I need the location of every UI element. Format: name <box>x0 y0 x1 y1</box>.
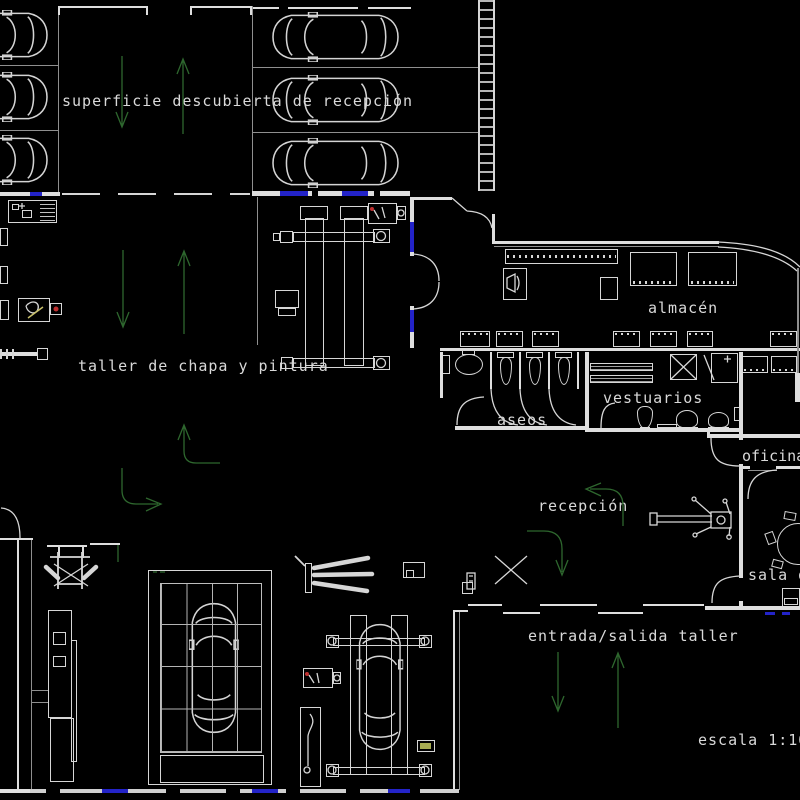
bench <box>590 363 653 371</box>
door-arc <box>711 438 740 466</box>
door-marker <box>252 789 278 793</box>
label-recepcion: recepción <box>538 497 628 515</box>
chair <box>764 531 777 545</box>
label-sala: sala d <box>748 566 800 584</box>
tool-cart <box>303 668 333 688</box>
wall-segment <box>58 6 148 8</box>
label-vestuarios: vestuarios <box>603 389 703 407</box>
bench-thread <box>0 349 14 359</box>
workbench-hatch <box>40 202 55 221</box>
boundary-gap <box>374 191 380 196</box>
shower <box>670 354 697 380</box>
wall-segment <box>707 428 710 438</box>
wall-segment <box>47 545 87 547</box>
wall-segment <box>468 604 502 606</box>
boundary-gap <box>312 191 318 196</box>
wall-cabinet <box>0 228 8 246</box>
label-superficie: superficie descubierta de recepción <box>62 92 413 110</box>
wall-inner-line <box>494 246 719 247</box>
workbench-item <box>22 210 32 218</box>
battery-cell <box>420 743 431 749</box>
sink <box>455 354 483 375</box>
stool-ticks <box>772 333 795 335</box>
wall-segment <box>540 604 597 606</box>
shelf-ticks <box>633 281 674 284</box>
equipment-box <box>503 268 527 300</box>
stall-partition <box>490 352 492 389</box>
hose-cabinet <box>300 707 321 787</box>
wall-segment <box>585 352 589 430</box>
tool-cabinet <box>368 203 397 224</box>
workbench-item <box>12 204 19 210</box>
stall-partition <box>548 352 550 389</box>
booth-floor-grid <box>160 583 262 753</box>
grinder-tool <box>50 303 62 315</box>
wall-segment <box>705 606 800 610</box>
boundary-dashed <box>62 193 250 195</box>
label-oficina: oficina <box>742 447 800 465</box>
parking-divider <box>58 6 59 192</box>
engine-stand-cross <box>54 564 88 586</box>
workbench-narrow <box>71 640 77 762</box>
rack-arms <box>314 558 372 591</box>
wall-cabinet <box>0 266 8 284</box>
side-table-shelf <box>278 308 296 316</box>
washbasin <box>708 412 729 428</box>
stool-ticks <box>615 333 638 335</box>
washbasin <box>676 410 698 428</box>
stall-partition <box>519 352 521 389</box>
door-marker <box>342 191 368 196</box>
wall-segment <box>739 464 743 578</box>
wall-segment <box>453 610 468 612</box>
lift-crossbar <box>293 232 375 242</box>
wall-segment <box>440 352 443 398</box>
wall-tick <box>250 6 252 15</box>
door-marker <box>388 789 410 793</box>
wall-segment <box>90 543 120 545</box>
alignment-machine-arms <box>695 500 730 536</box>
cabinet-drawer <box>53 656 66 667</box>
stool-ticks <box>652 333 675 335</box>
side-table <box>275 290 299 308</box>
toilet-bowl <box>637 406 653 429</box>
door-arc <box>712 576 740 603</box>
wall-segment <box>492 214 495 244</box>
cabinet-drawer <box>53 632 66 645</box>
wall-tick <box>58 545 60 558</box>
wall-segment <box>288 7 358 9</box>
wall-segment <box>707 434 800 438</box>
wall-segment <box>643 604 704 606</box>
parking-stall-line <box>0 130 58 131</box>
lift2-anchor <box>419 764 432 777</box>
wall-segment <box>795 373 800 402</box>
door-jamb <box>410 310 414 332</box>
lift2-anchor <box>326 764 339 777</box>
control-box <box>469 576 473 581</box>
toilet-bowl <box>558 357 570 385</box>
wall-tick <box>190 6 192 15</box>
boundary-bar <box>0 789 30 793</box>
scissor-lift-cross <box>495 556 527 584</box>
bench-head <box>37 348 48 360</box>
door-arc <box>452 198 492 228</box>
wall-segment <box>17 540 19 791</box>
wall-segment <box>0 538 33 540</box>
label-almacen: almacén <box>648 299 718 317</box>
wall-segment <box>494 241 719 244</box>
lift2-anchor <box>419 635 432 648</box>
wall-tick <box>58 6 60 15</box>
equipment-box <box>600 277 618 300</box>
stand-paddles <box>46 567 96 578</box>
wall-segment <box>503 612 540 614</box>
wall-segment <box>776 466 800 469</box>
stool-ticks <box>498 333 521 335</box>
desk-inner <box>784 598 798 605</box>
wall-segment <box>459 612 460 790</box>
label-taller: taller de chapa y pintura <box>78 357 329 375</box>
label-entrada: entrada/salida taller <box>528 627 739 645</box>
lift-anchor <box>280 231 293 243</box>
lift-anchor <box>373 229 390 243</box>
locker-ticks <box>773 369 795 371</box>
tool-cart-attachment <box>333 672 341 684</box>
parking-stall-line <box>252 67 478 68</box>
wall-tick <box>82 545 84 558</box>
shower <box>711 353 738 383</box>
parking-stall-line <box>0 65 58 66</box>
lift2-crossbar <box>333 638 425 646</box>
wall-segment <box>410 197 414 222</box>
wall-segment <box>410 332 414 348</box>
stool-ticks <box>689 333 711 335</box>
floor-plan: superficie descubierta de recepción tall… <box>0 0 800 800</box>
stool-ticks <box>462 333 488 335</box>
wall-segment <box>453 612 455 790</box>
small-cabinet-inner <box>406 570 414 578</box>
lift2-anchor <box>326 635 339 648</box>
booth-section <box>160 755 264 783</box>
alignment-machine-bar <box>657 516 712 522</box>
door-marker <box>765 612 775 615</box>
car-top-view <box>268 138 403 192</box>
door-arc <box>457 397 484 425</box>
door-marker <box>280 191 308 196</box>
wall-segment <box>190 6 252 8</box>
car-top-view <box>268 12 403 66</box>
wall-segment <box>440 348 800 351</box>
stall-partition <box>577 352 579 389</box>
wall-stub <box>31 702 48 703</box>
door-marker <box>782 612 790 615</box>
door-arc <box>1 508 20 538</box>
wall-segment <box>368 7 411 9</box>
wall-tick <box>146 6 148 15</box>
wall-segment <box>252 7 279 9</box>
wall-segment <box>414 197 452 200</box>
round-table <box>777 523 800 565</box>
door-marker <box>30 192 42 196</box>
parking-stall-line <box>252 132 478 133</box>
door-leaf <box>748 470 777 471</box>
car-top-view <box>0 72 52 126</box>
storage-rack-ticks <box>507 255 616 258</box>
wall-cabinet <box>0 300 9 320</box>
lift-anchor <box>273 233 280 241</box>
label-escala: escala 1:100 <box>698 731 800 749</box>
stool-ticks <box>534 333 557 335</box>
car-top-view <box>0 10 52 64</box>
door-jamb <box>410 222 414 252</box>
wall-fixture <box>734 407 740 421</box>
work-table <box>18 298 50 322</box>
wall-stub <box>31 690 48 691</box>
stand-bar <box>305 563 312 593</box>
boundary-bar <box>252 191 410 196</box>
door-marker <box>102 789 128 793</box>
wall-segment <box>31 540 32 791</box>
label-aseos: aseos <box>497 411 547 429</box>
bench <box>590 375 653 383</box>
toilet-bowl <box>500 357 512 385</box>
locker-ticks <box>744 369 766 371</box>
tool-cabinet-attachment <box>397 206 406 220</box>
wall-segment <box>410 252 414 256</box>
column <box>462 582 473 594</box>
wall-segment <box>598 612 643 614</box>
hatched-wall <box>478 0 495 191</box>
wall-segment <box>739 430 743 440</box>
bay-divider <box>257 197 258 345</box>
wall-segment <box>585 428 742 432</box>
sink-tap <box>462 350 475 355</box>
car-top-view <box>0 135 52 189</box>
chair <box>783 511 796 521</box>
wall-segment <box>797 268 799 373</box>
lift-anchor <box>373 356 390 370</box>
door-arc <box>748 470 777 499</box>
engine-stand <box>50 552 90 589</box>
lift2-crossbar <box>333 767 425 775</box>
toilet-bowl <box>529 357 541 385</box>
double-door-arc <box>413 254 439 309</box>
shelf-ticks <box>691 281 734 284</box>
